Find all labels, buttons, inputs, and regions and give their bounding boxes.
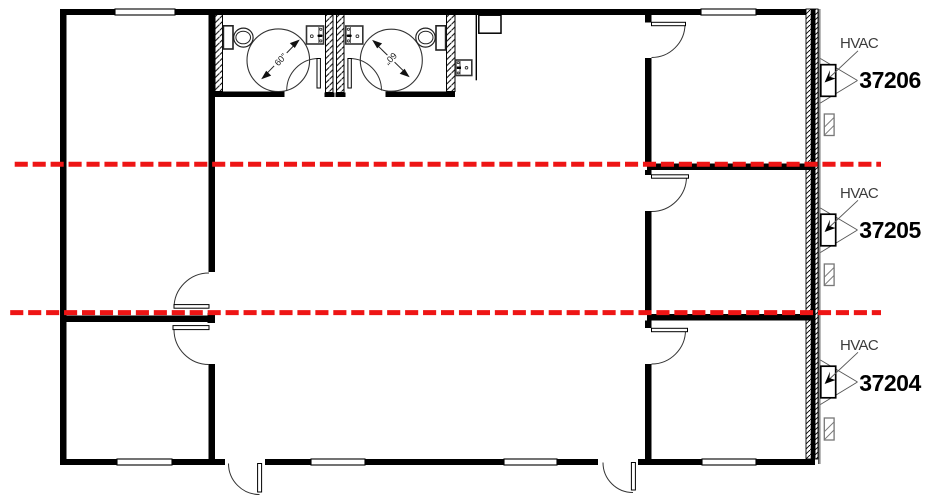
svg-text:37206: 37206 <box>859 67 920 93</box>
svg-text:37204: 37204 <box>859 370 921 396</box>
svg-text:37205: 37205 <box>859 217 921 243</box>
svg-text:HVAC: HVAC <box>840 337 879 354</box>
svg-text:HVAC: HVAC <box>840 185 879 202</box>
svg-text:HVAC: HVAC <box>840 35 879 52</box>
